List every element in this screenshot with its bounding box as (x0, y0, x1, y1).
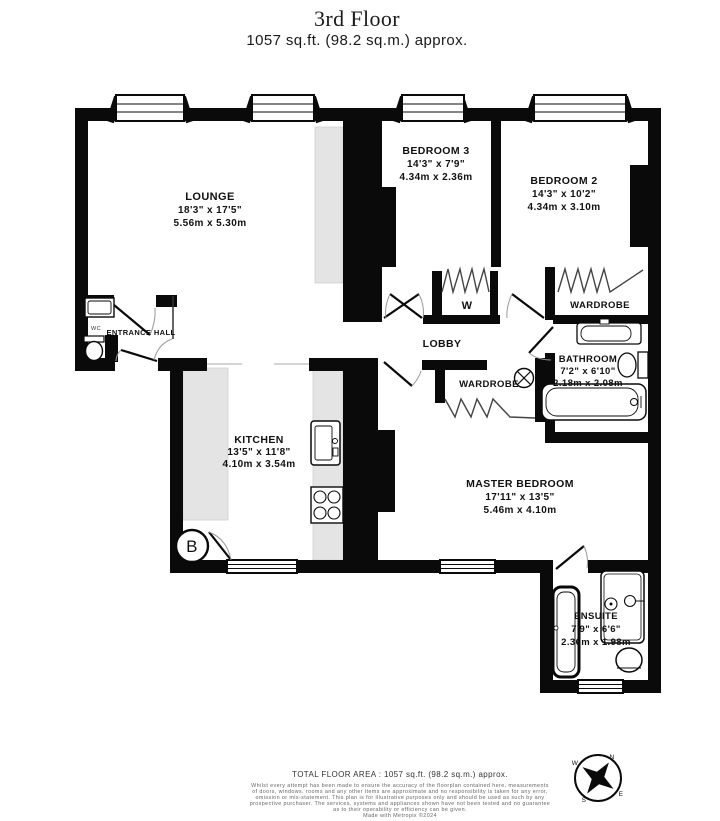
label-kitchen: KITCHEN 13'5" x 11'8" 4.10m x 3.54m (222, 434, 295, 470)
bifold-wardrobe-bedroom2 (558, 269, 643, 292)
window-lounge-2 (252, 95, 314, 121)
lounge-imperial: 18'3" x 17'5" (178, 205, 242, 216)
floorplan-page: 3rd Floor 1057 sq.ft. (98.2 sq.m.) appro… (0, 0, 720, 821)
total-floor-area: TOTAL FLOOR AREA : 1057 sq.ft. (98.2 sq.… (292, 770, 508, 779)
ensuite-imperial: 7'9" x 6'6" (571, 624, 621, 635)
label-w-closet: W (462, 300, 473, 312)
bathroom-name: BATHROOM (559, 354, 617, 365)
floor-title: 3rd Floor (314, 6, 400, 31)
kitchen-appliance-icon (311, 421, 340, 465)
lounge-alcove-shading (315, 127, 343, 283)
window-kitchen (227, 560, 297, 573)
bedroom2-name: BEDROOM 2 (530, 175, 597, 187)
master-bedroom-name: MASTER BEDROOM (466, 478, 574, 490)
bathroom-sink-icon (577, 319, 641, 344)
bathtub-icon (542, 384, 646, 420)
wc-sink-icon (85, 298, 114, 317)
label-entrance-hall: ENTRANCE HALL (107, 328, 176, 337)
door-bathroom (529, 327, 553, 353)
bedroom2-metric: 4.34m x 3.10m (527, 202, 600, 213)
bifold-wardrobe-master (445, 399, 535, 418)
label-bedroom2: BEDROOM 2 14'3" x 10'2" 4.34m x 3.10m (527, 175, 600, 213)
hob-icon (311, 487, 343, 523)
boiler-label: B (186, 537, 198, 556)
bifold-w-closet (442, 269, 489, 292)
door-bedroom3 (390, 294, 422, 318)
floor-area-subtitle: 1057 sq.ft. (98.2 sq.m.) approx. (246, 32, 467, 49)
kitchen-imperial: 13'5" x 11'8" (227, 447, 290, 458)
footer: TOTAL FLOOR AREA : 1057 sq.ft. (98.2 sq.… (250, 770, 551, 819)
ensuite-toilet-icon (616, 648, 642, 672)
door-ensuite (556, 546, 584, 569)
ensuite-name: ENSUITE (574, 611, 618, 622)
bedroom2-imperial: 14'3" x 10'2" (532, 189, 596, 200)
window-lounge-1 (116, 95, 184, 121)
credit-line: Made with Metropix ©2024 (363, 812, 437, 819)
kitchen-counter-left (183, 368, 228, 520)
bedroom3-imperial: 14'3" x 7'9" (407, 159, 465, 170)
window-bedroom3 (402, 95, 464, 121)
floorplan-canvas: 3rd Floor 1057 sq.ft. (98.2 sq.m.) appro… (0, 0, 720, 821)
lounge-metric: 5.56m x 5.30m (173, 218, 246, 229)
label-master-bedroom: MASTER BEDROOM 17'11" x 13'5" 5.46m x 4.… (466, 478, 574, 516)
window-ensuite (578, 680, 623, 693)
bedroom3-name: BEDROOM 3 (402, 145, 469, 157)
bathroom-metric: 2.18m x 2.08m (553, 378, 623, 389)
window-master-bedroom (440, 560, 495, 573)
label-lounge: LOUNGE 18'3" x 17'5" 5.56m x 5.30m (173, 191, 246, 229)
kitchen-name: KITCHEN (234, 434, 283, 446)
door-corridor-lobby (384, 294, 419, 318)
boiler-circle: B (176, 530, 208, 562)
bathroom-toilet-icon (618, 352, 648, 378)
wc-toilet-icon (84, 336, 104, 361)
master-bedroom-metric: 5.46m x 4.10m (483, 505, 556, 516)
label-wardrobe-bedroom2: WARDROBE (570, 300, 630, 311)
door-bedroom2 (512, 294, 544, 318)
bedroom3-metric: 4.34m x 2.36m (399, 172, 472, 183)
label-wc: WC (91, 326, 101, 332)
compass-s: S (582, 797, 587, 804)
bathroom-imperial: 7'2" x 6'10" (560, 366, 615, 377)
label-bathroom: BATHROOM 7'2" x 6'10" 2.18m x 2.08m (553, 354, 623, 389)
window-bedroom2 (534, 95, 626, 121)
lounge-name: LOUNGE (185, 191, 234, 203)
compass-n: N (609, 754, 614, 761)
door-entrance (121, 350, 157, 361)
label-bedroom3: BEDROOM 3 14'3" x 7'9" 4.34m x 2.36m (399, 145, 472, 183)
master-bedroom-imperial: 17'11" x 13'5" (485, 492, 554, 503)
door-boiler-cupboard (209, 532, 231, 560)
label-lobby: LOBBY (423, 338, 462, 350)
compass-w: W (572, 760, 579, 767)
ensuite-metric: 2.36m x 1.98m (561, 637, 631, 648)
door-master-bedroom (384, 362, 412, 386)
compass-star (572, 752, 625, 805)
compass-icon: N E S W (572, 752, 625, 805)
label-wardrobe-master: WARDROBE (459, 379, 519, 390)
kitchen-metric: 4.10m x 3.54m (222, 459, 295, 470)
compass-e: E (619, 791, 624, 798)
